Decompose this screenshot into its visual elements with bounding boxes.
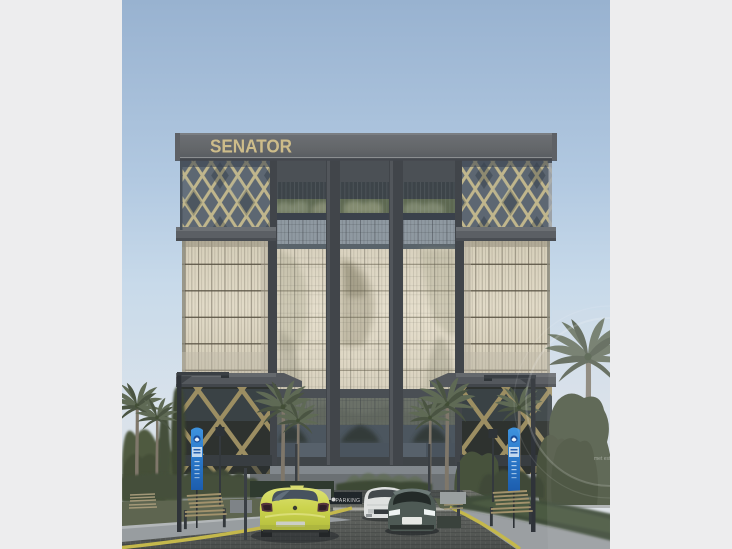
svg-text:SENATOR: SENATOR [210,137,292,157]
svg-text:PARKING: PARKING [336,498,361,504]
